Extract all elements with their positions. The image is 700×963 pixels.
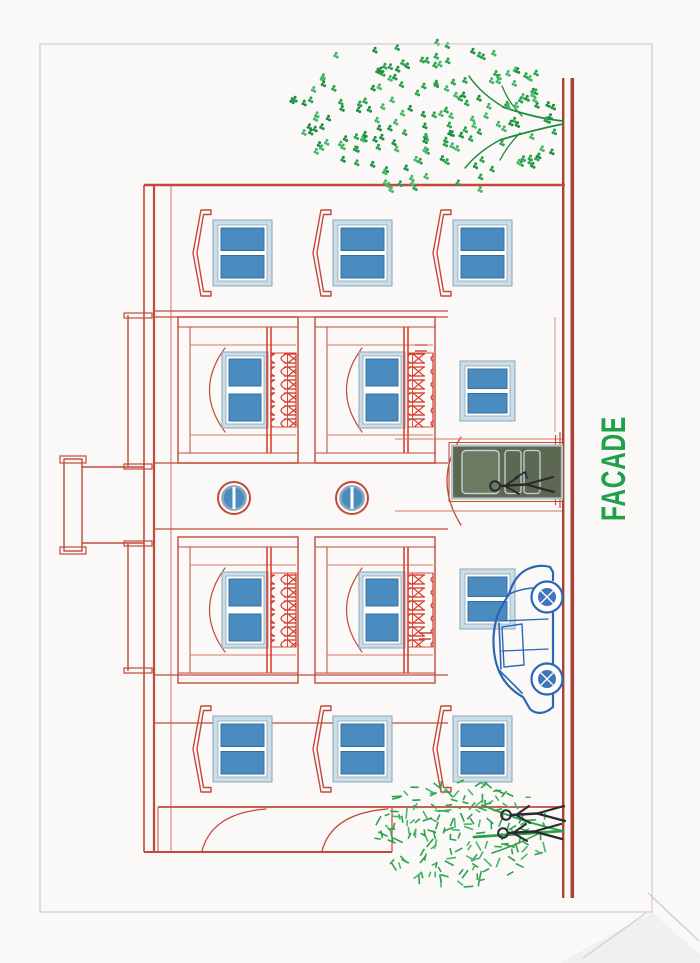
roof-structures — [60, 313, 152, 673]
porthole-windows — [218, 482, 368, 514]
ground-line — [562, 78, 574, 898]
scanned-page: FACADE — [0, 0, 700, 963]
ornate-bays — [178, 317, 435, 683]
facade-label: FACADE — [595, 416, 634, 521]
shrub — [375, 780, 563, 887]
rotated-drawing-area: FACADE — [0, 0, 700, 963]
tree — [289, 39, 563, 193]
